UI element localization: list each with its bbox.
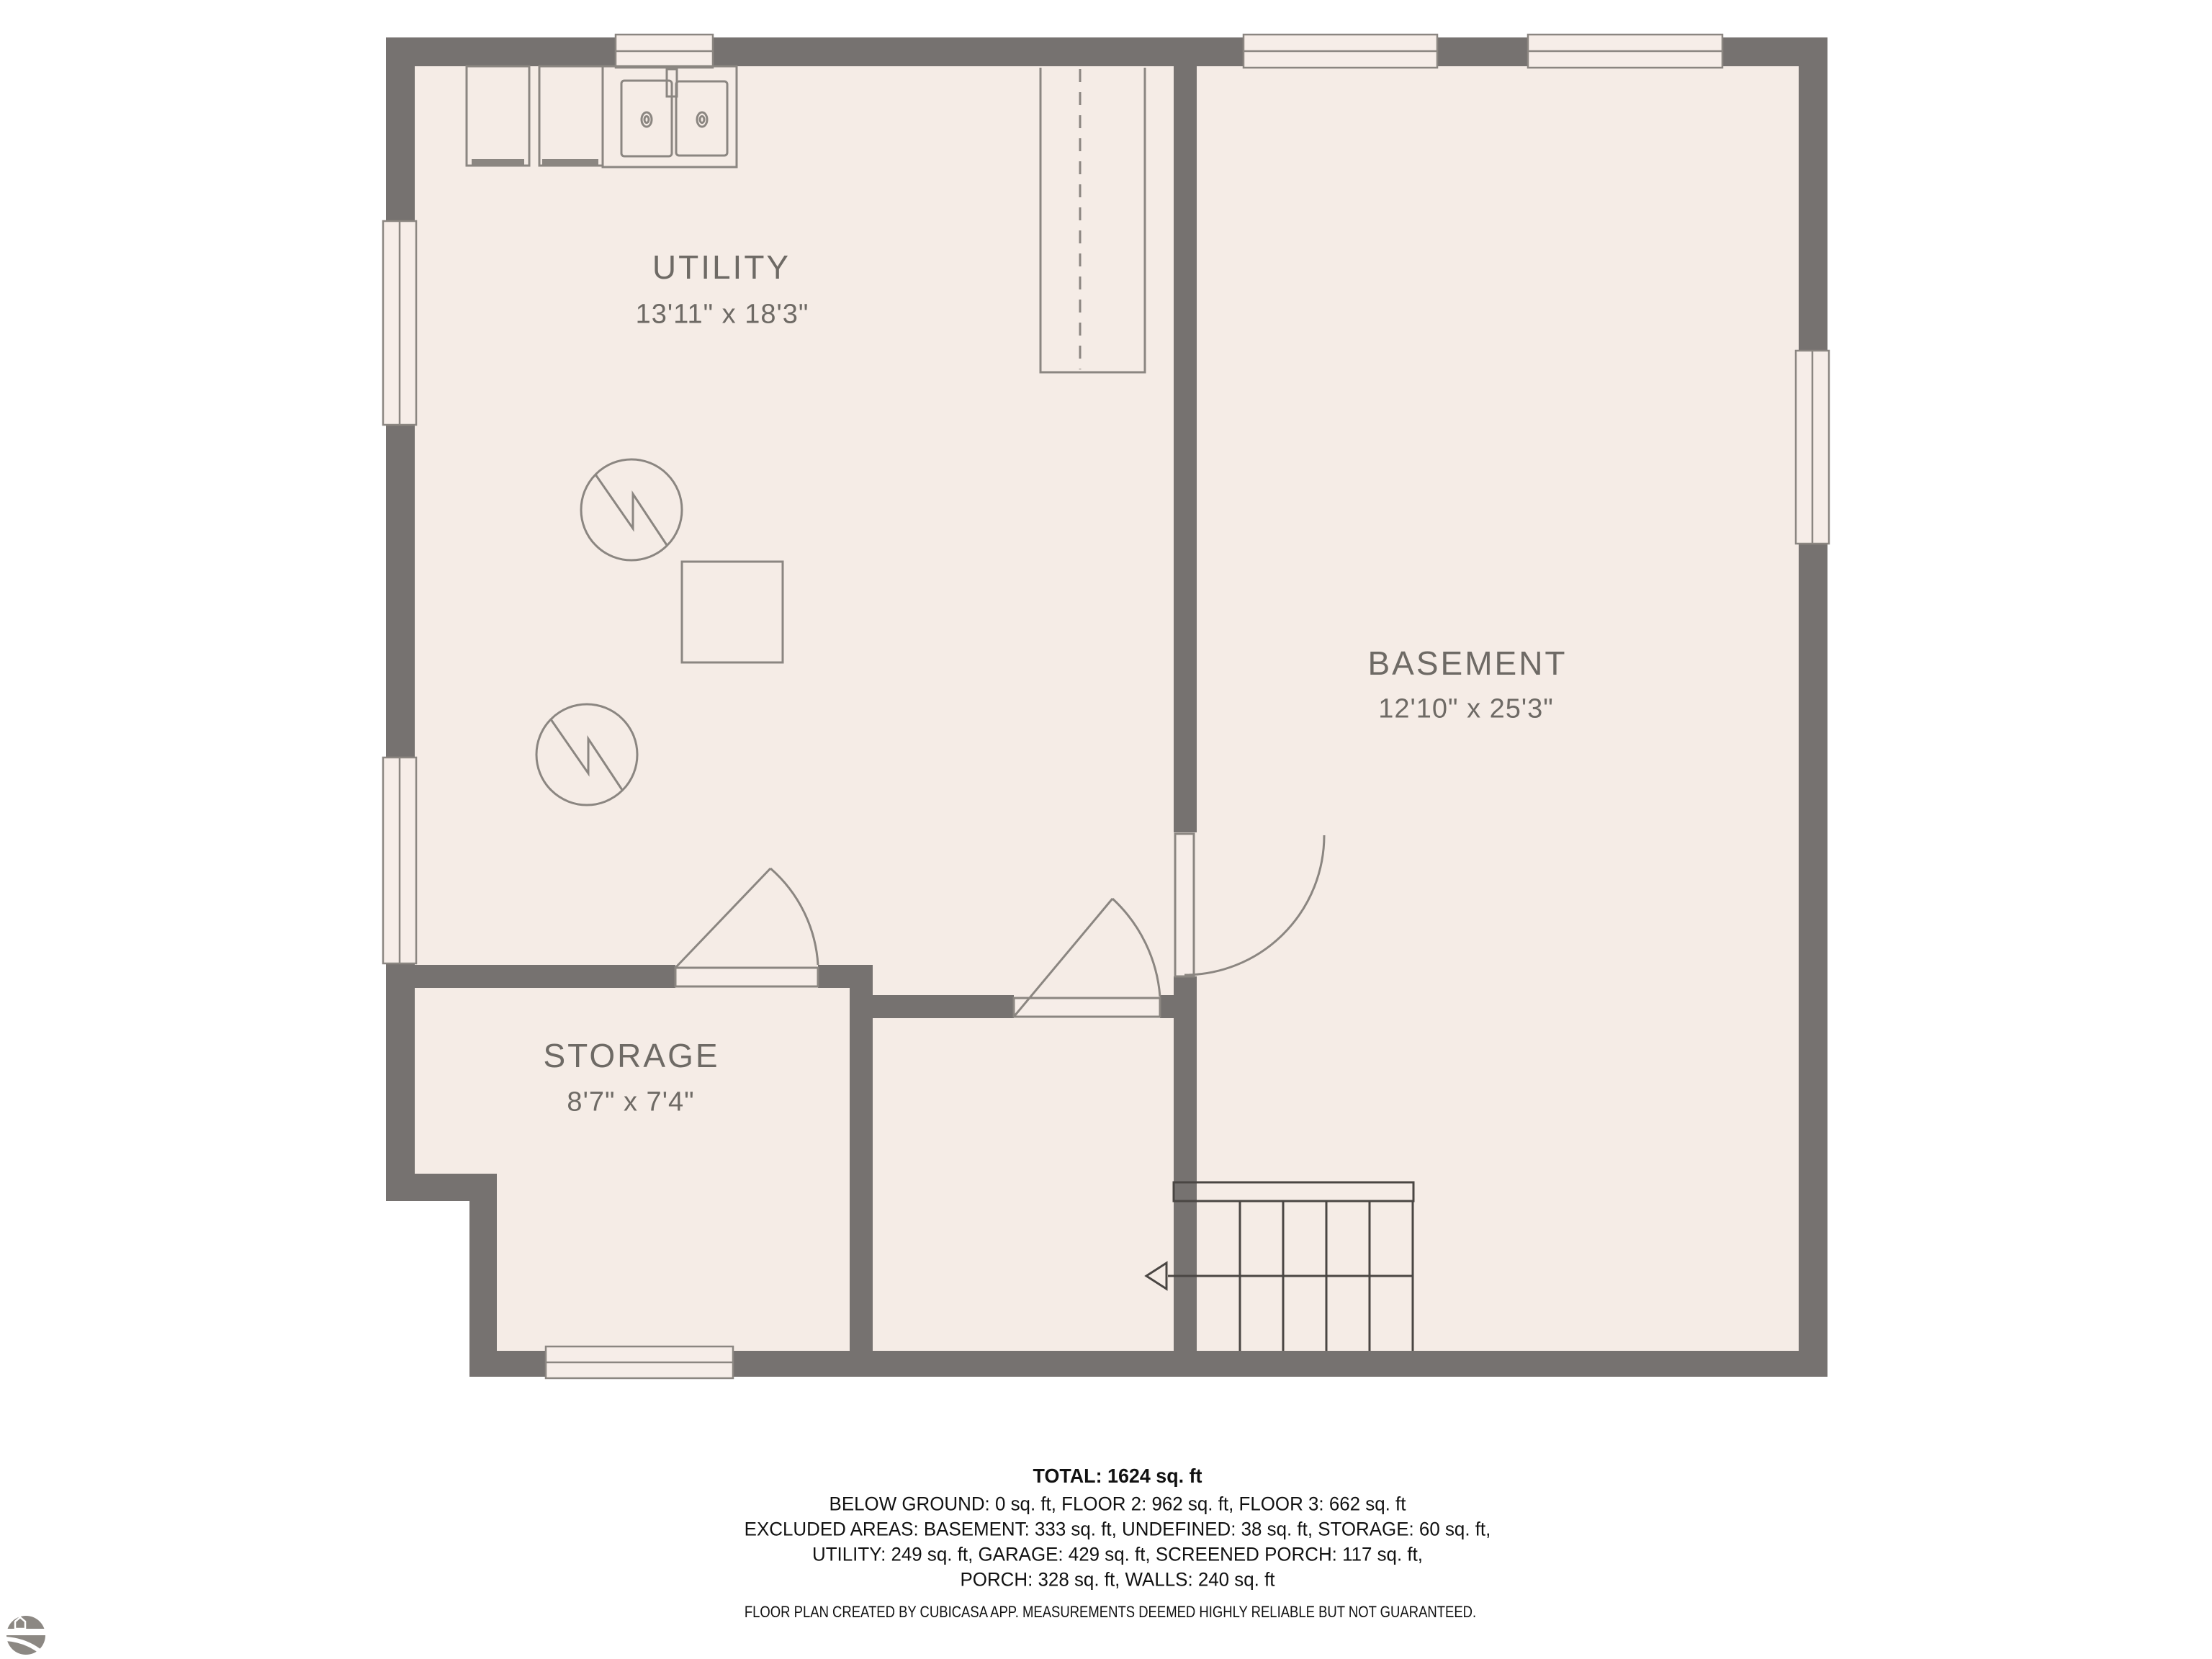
- window-icon: [616, 35, 713, 68]
- room-dims: 12'10" x 25'3": [1378, 694, 1554, 725]
- cubicasa-logo-icon: [4, 1616, 48, 1655]
- window-icon: [1244, 35, 1437, 68]
- room-label-storage: STORAGE: [543, 1036, 719, 1075]
- disclaimer: FLOOR PLAN CREATED BY CUBICASA APP. MEAS…: [745, 1603, 1476, 1622]
- room-name: UTILITY: [652, 248, 791, 287]
- room-dims-utility: 13'11" x 18'3": [636, 300, 809, 331]
- room-label-basement: BASEMENT: [1367, 644, 1567, 683]
- summary-floors: BELOW GROUND: 0 sq. ft, FLOOR 2: 962 sq.…: [829, 1493, 1406, 1516]
- summary-excluded-2: UTILITY: 249 sq. ft, GARAGE: 429 sq. ft,…: [812, 1544, 1423, 1566]
- window-icon: [383, 221, 416, 425]
- room-dims: 13'11" x 18'3": [636, 300, 809, 331]
- summary-excluded-3: PORCH: 328 sq. ft, WALLS: 240 sq. ft: [961, 1569, 1275, 1591]
- floorplan-page: UTILITY 13'11" x 18'3" BASEMENT 12'10" x…: [0, 0, 2212, 1659]
- window-icon: [546, 1346, 733, 1378]
- floorplan-drawing: [0, 0, 2212, 1659]
- room-dims-storage: 8'7" x 7'4": [567, 1087, 694, 1118]
- room-name: BASEMENT: [1367, 644, 1567, 683]
- room-dims: 8'7" x 7'4": [567, 1087, 694, 1118]
- room-name: STORAGE: [543, 1036, 719, 1075]
- room-label-utility: UTILITY: [652, 248, 791, 287]
- window-icon: [1528, 35, 1722, 68]
- summary-excluded-1: EXCLUDED AREAS: BASEMENT: 333 sq. ft, UN…: [745, 1519, 1491, 1541]
- room-dims-basement: 12'10" x 25'3": [1378, 694, 1554, 725]
- window-icon: [383, 757, 416, 963]
- summary-total: TOTAL: 1624 sq. ft: [1033, 1465, 1202, 1488]
- window-icon: [1796, 351, 1829, 544]
